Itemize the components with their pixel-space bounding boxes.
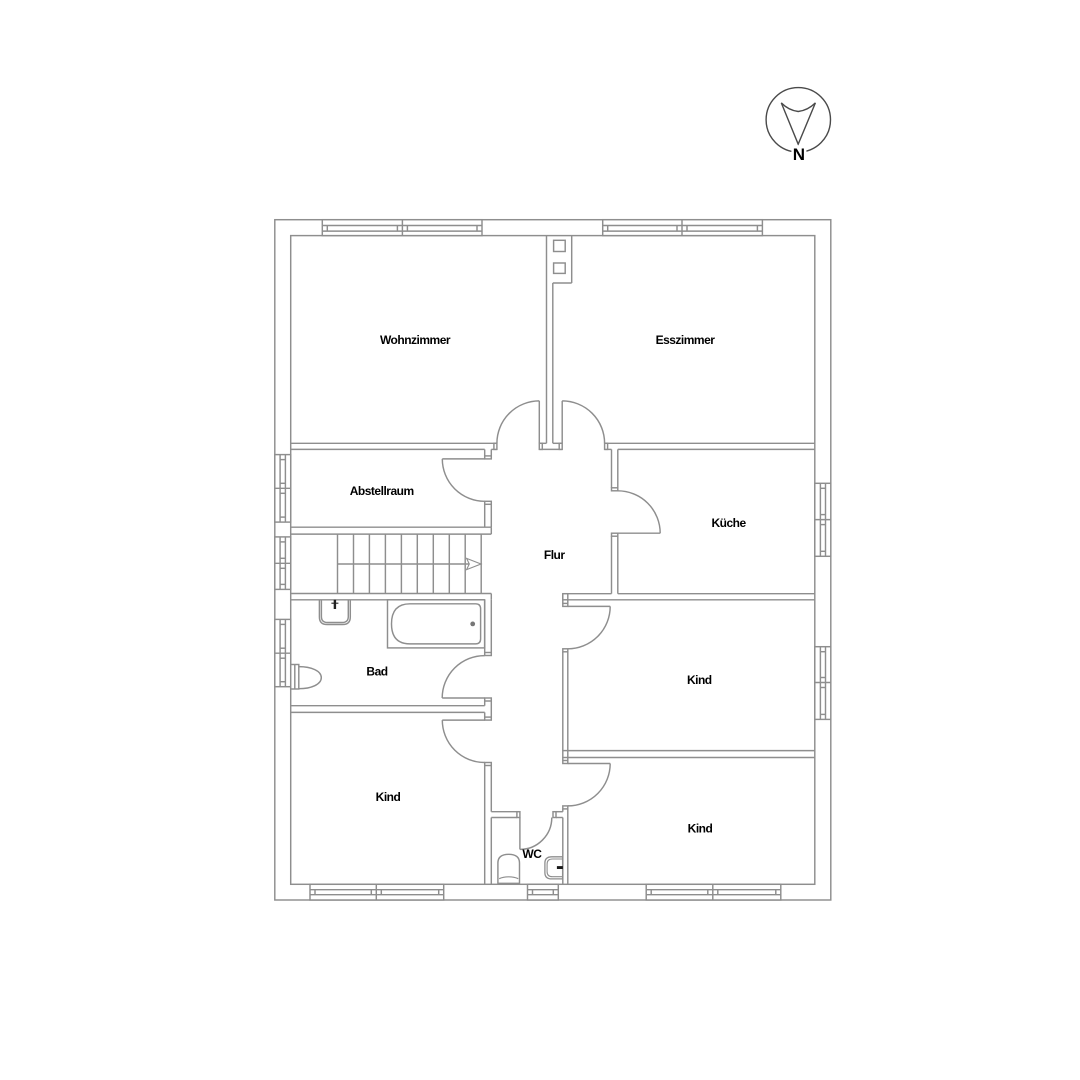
svg-text:Wohnzimmer: Wohnzimmer bbox=[380, 333, 451, 347]
svg-text:Bad: Bad bbox=[366, 665, 387, 679]
svg-text:Kind: Kind bbox=[687, 673, 712, 687]
svg-text:Kind: Kind bbox=[376, 790, 401, 804]
svg-text:Küche: Küche bbox=[712, 516, 747, 530]
svg-text:WC: WC bbox=[522, 847, 542, 861]
svg-text:Abstellraum: Abstellraum bbox=[350, 484, 414, 498]
svg-text:Esszimmer: Esszimmer bbox=[656, 333, 716, 347]
svg-text:Flur: Flur bbox=[544, 548, 565, 562]
svg-text:Kind: Kind bbox=[688, 822, 713, 836]
svg-text:N: N bbox=[793, 145, 805, 164]
